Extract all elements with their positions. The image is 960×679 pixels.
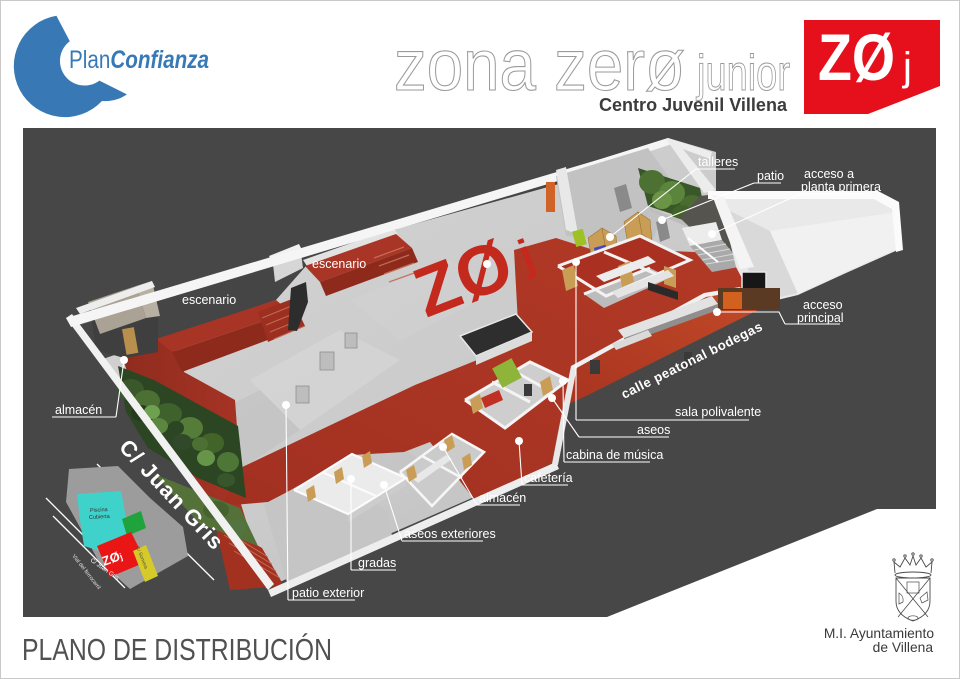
svg-text:sala polivalente: sala polivalente — [675, 405, 761, 419]
svg-text:gradas: gradas — [358, 556, 396, 570]
svg-text:ZØ: ZØ — [818, 20, 895, 94]
svg-text:almacén: almacén — [55, 403, 102, 417]
svg-text:escenario: escenario — [182, 293, 236, 307]
svg-text:aseos: aseos — [637, 423, 670, 437]
svg-text:PLANO DE DISTRIBUCIÓN: PLANO DE DISTRIBUCIÓN — [22, 632, 332, 667]
svg-text:PlanConfianza: PlanConfianza — [69, 46, 209, 74]
svg-text:talleres: talleres — [698, 155, 738, 169]
svg-text:junior: junior — [695, 45, 790, 101]
svg-text:de Villena: de Villena — [873, 640, 934, 655]
svg-text:planta primera: planta primera — [801, 180, 881, 194]
svg-text:escenario: escenario — [312, 257, 366, 271]
svg-text:Piscina: Piscina — [90, 507, 109, 514]
svg-text:j: j — [902, 45, 912, 89]
svg-text:acceso: acceso — [803, 298, 843, 312]
svg-text:M.I. Ayuntamiento: M.I. Ayuntamiento — [824, 626, 935, 641]
svg-text:patio: patio — [757, 169, 784, 183]
svg-text:cabina de música: cabina de música — [566, 448, 663, 462]
svg-text:Cubierta: Cubierta — [89, 514, 111, 521]
svg-text:almacén: almacén — [479, 491, 526, 505]
svg-text:acceso a: acceso a — [804, 167, 854, 181]
svg-text:cafetería: cafetería — [524, 471, 573, 485]
svg-text:patio exterior: patio exterior — [292, 586, 364, 600]
svg-text:Centro Juvenil Villena: Centro Juvenil Villena — [599, 94, 788, 115]
svg-text:aseos exteriores: aseos exteriores — [404, 527, 496, 541]
svg-text:principal: principal — [797, 311, 844, 325]
